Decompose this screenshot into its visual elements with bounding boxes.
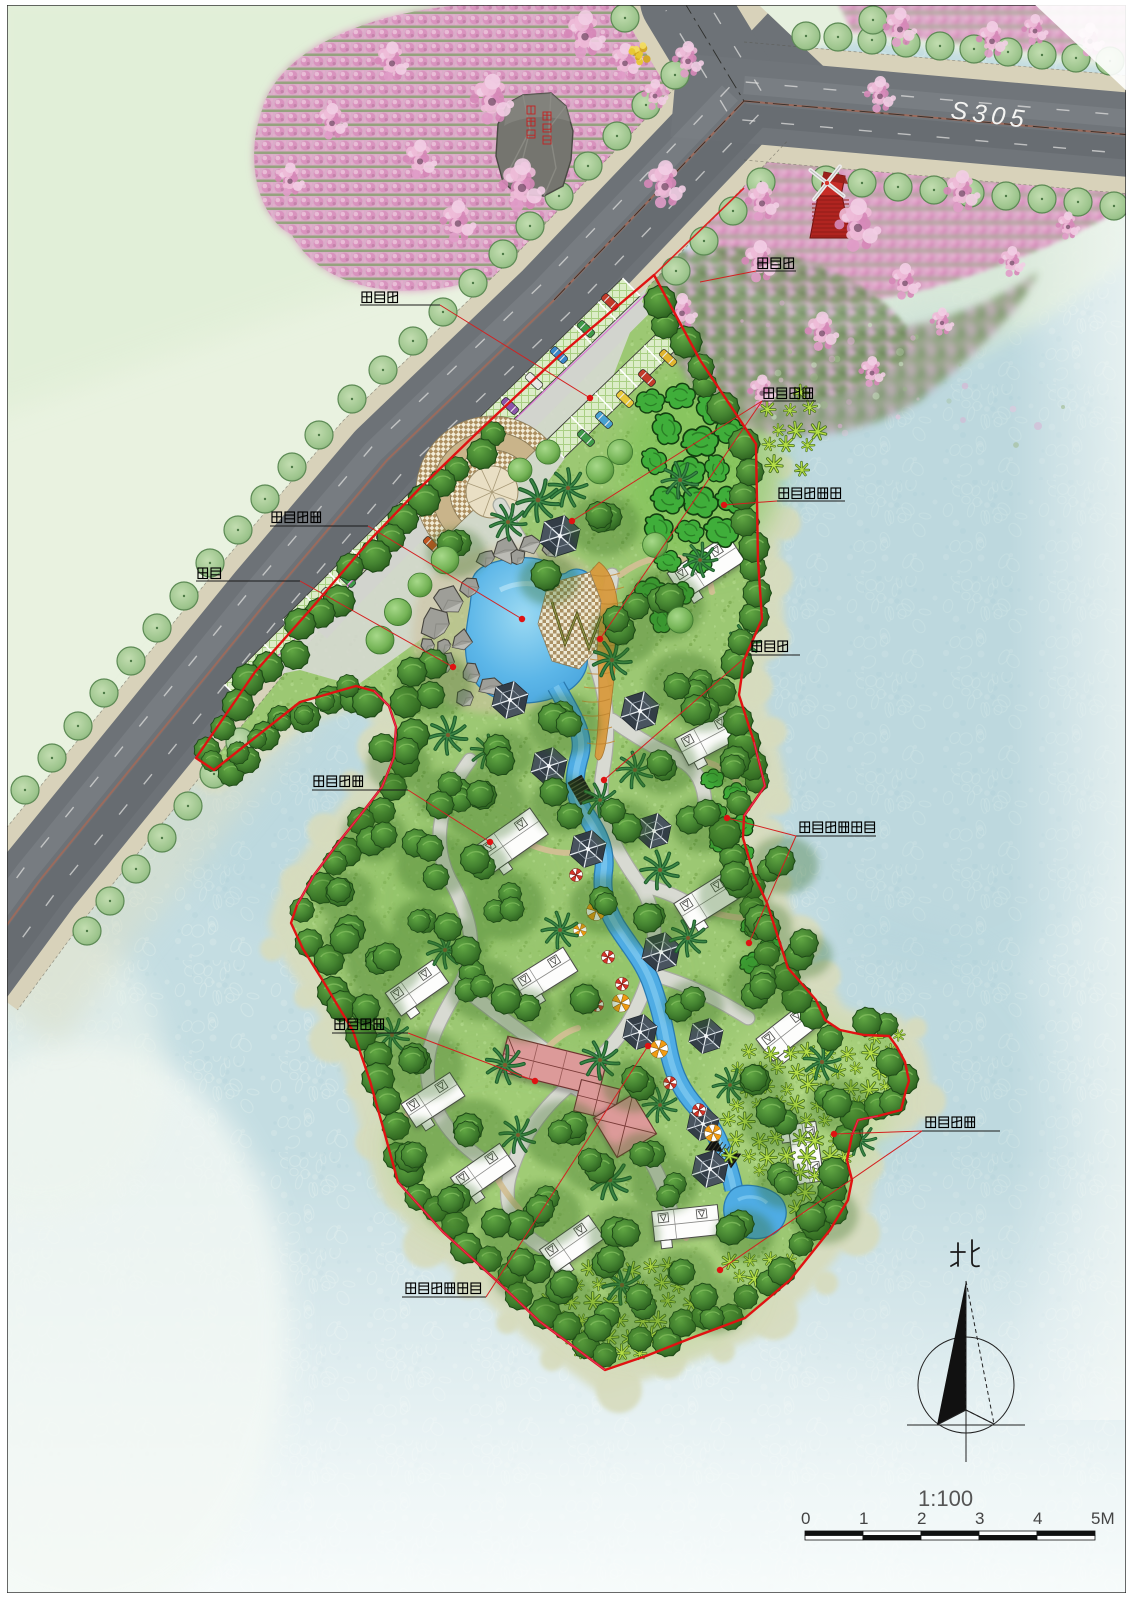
svg-text:5M: 5M bbox=[1091, 1509, 1115, 1528]
svg-text:0: 0 bbox=[801, 1509, 810, 1528]
svg-text:4: 4 bbox=[1033, 1509, 1042, 1528]
svg-text:1: 1 bbox=[859, 1509, 868, 1528]
svg-text:2: 2 bbox=[917, 1509, 926, 1528]
svg-text:1:100: 1:100 bbox=[918, 1486, 973, 1511]
svg-text:3: 3 bbox=[975, 1509, 984, 1528]
